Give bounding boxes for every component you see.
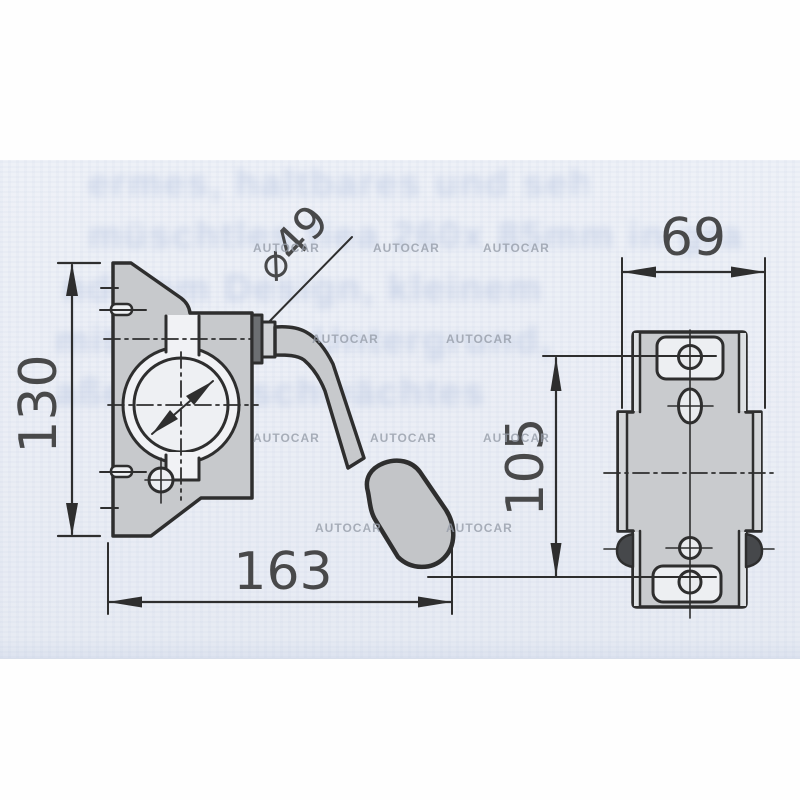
watermark: AUTOCAR [315, 521, 382, 535]
watermark: AUTOCAR [483, 241, 550, 255]
watermark: AUTOCAR [370, 431, 437, 445]
watermark: AUTOCAR [446, 521, 513, 535]
watermark: AUTOCAR [253, 431, 320, 445]
watermark: AUTOCAR [483, 431, 550, 445]
watermark: AUTOCAR [446, 332, 513, 346]
scanned-page: ermes, haltbares und sehr langlei müscht… [0, 0, 800, 800]
ghost-text-line: aße ohne schwächtes Profil [55, 372, 485, 415]
watermark: AUTOCAR [312, 332, 379, 346]
ghost-text-line: nderem Design, kleinem Unterba [62, 268, 552, 311]
ghost-text-line: ermes, haltbares und sehr langlei [88, 163, 588, 206]
watermark: AUTOCAR [373, 241, 440, 255]
watermark: AUTOCAR [253, 241, 320, 255]
